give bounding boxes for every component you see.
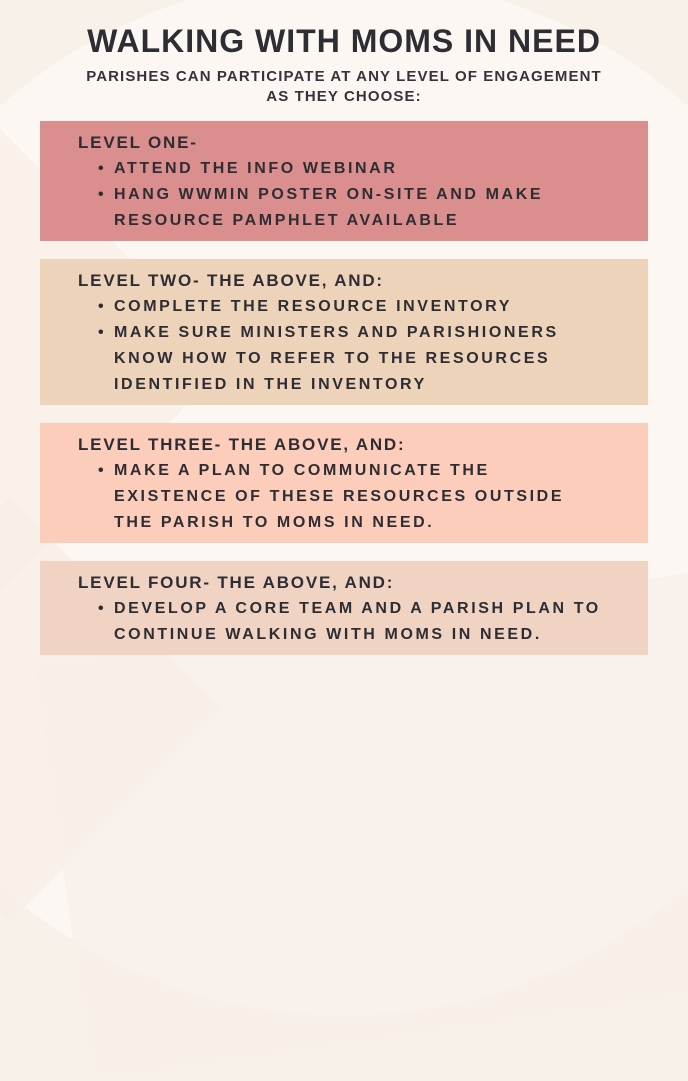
level-box-1: LEVEL ONE- ATTEND THE INFO WEBINAR HANG … <box>40 121 648 241</box>
bullet-item: MAKE A PLAN TO COMMUNICATE THE EXISTENCE… <box>98 458 603 536</box>
level-3-heading: LEVEL THREE- THE ABOVE, AND: <box>78 432 620 458</box>
bullet-item: HANG WWMIN POSTER ON-SITE AND MAKE RESOU… <box>98 182 603 234</box>
poster-title: WALKING WITH MOMS IN NEED <box>0 22 688 60</box>
level-1-heading: LEVEL ONE- <box>78 130 620 156</box>
bullet-item: DEVELOP A CORE TEAM AND A PARISH PLAN TO… <box>98 596 603 648</box>
bullet-item: ATTEND THE INFO WEBINAR <box>98 156 603 182</box>
poster-subtitle: PARISHES CAN PARTICIPATE AT ANY LEVEL OF… <box>40 67 648 107</box>
poster-subtitle-line-1: PARISHES CAN PARTICIPATE AT ANY LEVEL OF… <box>40 67 648 87</box>
level-4-heading: LEVEL FOUR- THE ABOVE, AND: <box>78 570 620 596</box>
bullet-item: MAKE SURE MINISTERS AND PARISHIONERS KNO… <box>98 320 603 398</box>
poster-subtitle-line-2: AS THEY CHOOSE: <box>40 87 648 107</box>
level-3-bullet-list: MAKE A PLAN TO COMMUNICATE THE EXISTENCE… <box>78 458 603 536</box>
poster-content: WALKING WITH MOMS IN NEED PARISHES CAN P… <box>0 0 688 655</box>
level-2-bullet-list: COMPLETE THE RESOURCE INVENTORY MAKE SUR… <box>78 294 603 398</box>
level-2-heading: LEVEL TWO- THE ABOVE, AND: <box>78 268 620 294</box>
bullet-item: COMPLETE THE RESOURCE INVENTORY <box>98 294 603 320</box>
level-box-2: LEVEL TWO- THE ABOVE, AND: COMPLETE THE … <box>40 259 648 405</box>
level-box-4: LEVEL FOUR- THE ABOVE, AND: DEVELOP A CO… <box>40 561 648 655</box>
level-1-bullet-list: ATTEND THE INFO WEBINAR HANG WWMIN POSTE… <box>78 156 603 234</box>
level-box-3: LEVEL THREE- THE ABOVE, AND: MAKE A PLAN… <box>40 423 648 543</box>
level-4-bullet-list: DEVELOP A CORE TEAM AND A PARISH PLAN TO… <box>78 596 603 648</box>
level-boxes: LEVEL ONE- ATTEND THE INFO WEBINAR HANG … <box>40 121 648 655</box>
